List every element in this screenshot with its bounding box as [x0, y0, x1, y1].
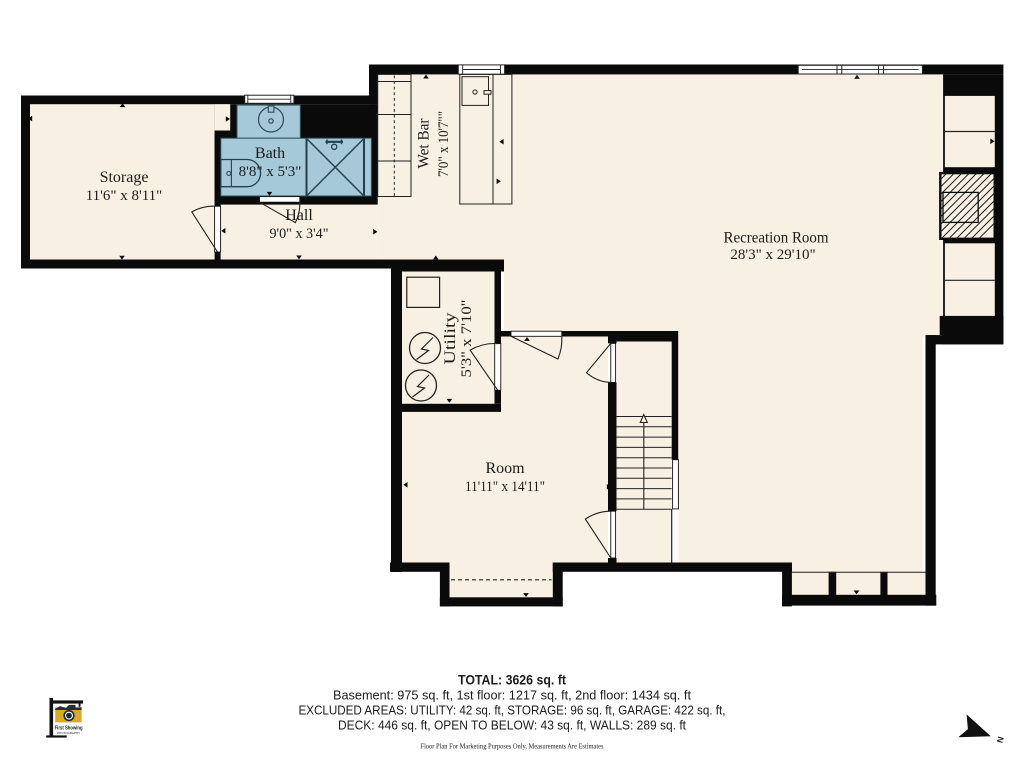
svg-text:5'3" x 7'10": 5'3" x 7'10" [459, 300, 475, 378]
svg-text:Storage: Storage [100, 169, 149, 186]
svg-text:9'0" x 3'4": 9'0" x 3'4" [270, 226, 329, 242]
svg-text:Room: Room [485, 460, 525, 477]
svg-text:28'3" x 29'10": 28'3" x 29'10" [730, 247, 815, 263]
svg-text:8'8" x 5'3": 8'8" x 5'3" [239, 164, 302, 180]
svg-text:7'0" x 10'7"": 7'0" x 10'7"" [436, 111, 452, 177]
svg-text:Bath: Bath [255, 145, 285, 162]
svg-text:Wet Bar: Wet Bar [416, 118, 433, 169]
svg-text:Basement: 975 sq. ft, 1st floo: Basement: 975 sq. ft, 1st floor: 1217 sq… [333, 687, 691, 702]
svg-text:Hall: Hall [285, 207, 313, 224]
svg-text:11'11" x 14'11": 11'11" x 14'11" [465, 479, 545, 495]
svg-text:11'6" x 8'11": 11'6" x 8'11" [86, 188, 163, 204]
svg-text:Recreation Room: Recreation Room [724, 229, 830, 246]
svg-text:DECK: 446 sq. ft, OPEN TO BELO: DECK: 446 sq. ft, OPEN TO BELOW: 43 sq. … [338, 717, 686, 732]
svg-text:PHOTOGRAPHY: PHOTOGRAPHY [57, 731, 80, 735]
svg-text:Utility: Utility [442, 313, 459, 365]
svg-text:Floor Plan For Marketing Purpo: Floor Plan For Marketing Purposes Only, … [421, 742, 604, 751]
svg-text:TOTAL: 3626 sq. ft: TOTAL: 3626 sq. ft [458, 673, 566, 688]
svg-text:EXCLUDED AREAS: UTILITY: 42 sq: EXCLUDED AREAS: UTILITY: 42 sq. ft, STOR… [299, 702, 726, 717]
